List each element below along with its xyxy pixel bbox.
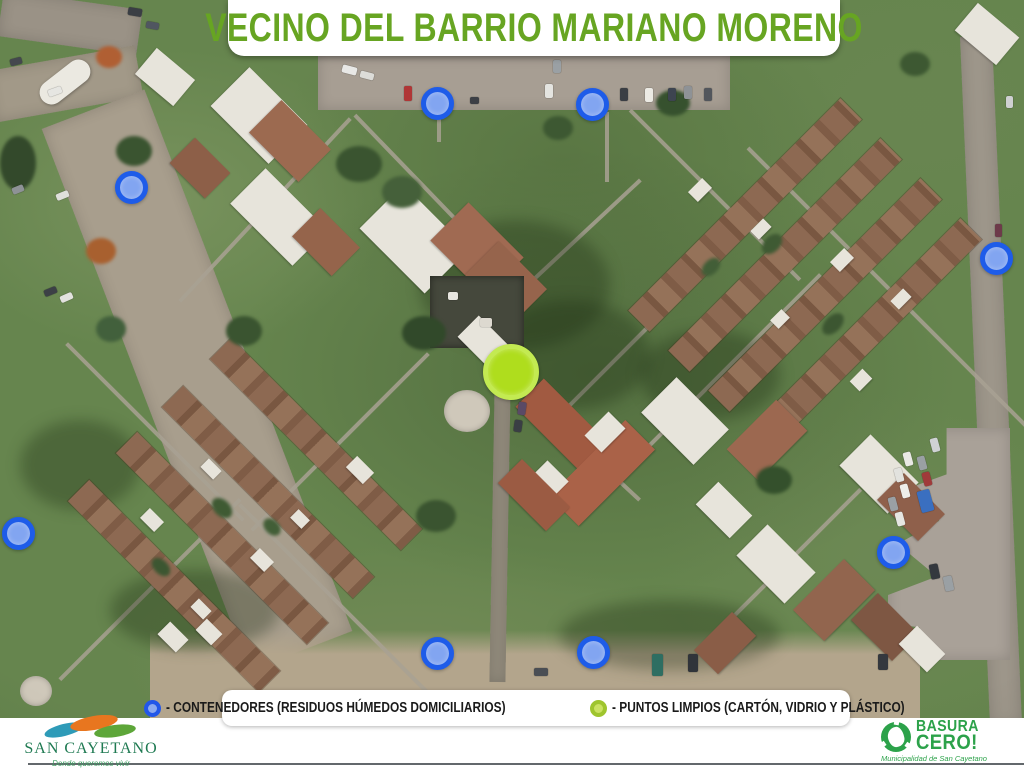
tree bbox=[416, 500, 456, 532]
roof-white bbox=[850, 369, 873, 392]
car bbox=[929, 437, 940, 453]
program-tagline: Municipalidad de San Cayetano bbox=[854, 754, 1014, 763]
municipality-name: SAN CAYETANO bbox=[16, 740, 166, 758]
program-name-line2: CERO! bbox=[916, 734, 979, 753]
punto-limpio-legend-dot-icon bbox=[590, 700, 607, 717]
path bbox=[605, 112, 609, 182]
tree bbox=[382, 176, 422, 208]
car bbox=[534, 668, 548, 676]
car bbox=[668, 88, 676, 101]
car bbox=[43, 286, 58, 297]
legend-label: - CONTENEDORES (RESIDUOS HÚMEDOS DOMICIL… bbox=[166, 700, 506, 716]
legend-bar: - CONTENEDORES (RESIDUOS HÚMEDOS DOMICIL… bbox=[222, 690, 850, 726]
legend-label: - PUNTOS LIMPIOS (CARTÓN, VIDRIO Y PLÁST… bbox=[612, 700, 905, 716]
san-cayetano-swoosh-icon bbox=[36, 716, 146, 738]
car bbox=[480, 318, 492, 327]
contenedor-marker bbox=[115, 171, 148, 204]
car bbox=[684, 86, 692, 99]
contenedor-marker bbox=[576, 88, 609, 121]
car bbox=[995, 224, 1002, 237]
car bbox=[545, 84, 553, 98]
car bbox=[916, 455, 927, 471]
roof-white bbox=[696, 482, 753, 539]
contenedor-legend-dot-icon bbox=[144, 700, 161, 717]
contenedor-marker bbox=[980, 242, 1013, 275]
tree bbox=[226, 316, 262, 346]
plaza bbox=[20, 676, 52, 706]
car bbox=[55, 190, 70, 201]
tree bbox=[402, 316, 446, 350]
basura-cero-logo: BASURA CERO! Municipalidad de San Cayeta… bbox=[854, 720, 1014, 763]
contenedor-marker bbox=[877, 536, 910, 569]
car bbox=[448, 292, 458, 300]
footer-divider bbox=[28, 763, 1024, 765]
roof-white bbox=[140, 508, 164, 532]
contenedor-marker bbox=[421, 637, 454, 670]
tree bbox=[96, 46, 122, 68]
municipality-tagline: Donde queremos vivir bbox=[16, 759, 166, 768]
contenedor-marker bbox=[421, 87, 454, 120]
tree bbox=[96, 316, 126, 342]
car bbox=[878, 654, 888, 670]
car bbox=[145, 21, 159, 30]
contenedor-marker bbox=[577, 636, 610, 669]
roof-white bbox=[688, 178, 712, 202]
tree bbox=[336, 146, 382, 182]
car bbox=[553, 60, 561, 73]
page-title: VECINO DEL BARRIO MARIANO MORENO bbox=[205, 6, 863, 51]
car bbox=[652, 654, 663, 676]
tree bbox=[543, 116, 573, 140]
car bbox=[620, 88, 628, 101]
contenedor-marker bbox=[2, 517, 35, 550]
legend-item-contenedores: - CONTENEDORES (RESIDUOS HÚMEDOS DOMICIL… bbox=[144, 700, 580, 717]
san-cayetano-logo: SAN CAYETANO Donde queremos vivir bbox=[16, 716, 166, 768]
roof-white bbox=[736, 524, 815, 603]
tree bbox=[900, 52, 930, 76]
car bbox=[470, 97, 479, 104]
car bbox=[645, 88, 653, 102]
legend-item-puntos-limpios: - PUNTOS LIMPIOS (CARTÓN, VIDRIO Y PLÁST… bbox=[590, 700, 929, 717]
recycle-leaf-icon bbox=[881, 722, 911, 752]
poster: VECINO DEL BARRIO MARIANO MORENO - CONTE… bbox=[0, 0, 1024, 768]
car bbox=[688, 654, 698, 672]
car bbox=[902, 451, 913, 467]
tree bbox=[0, 136, 36, 190]
tree bbox=[86, 238, 116, 264]
title-banner: VECINO DEL BARRIO MARIANO MORENO bbox=[228, 0, 840, 56]
tree bbox=[756, 466, 792, 494]
car bbox=[404, 86, 412, 101]
car bbox=[704, 88, 712, 101]
car bbox=[59, 292, 74, 304]
punto-limpio-marker bbox=[483, 344, 539, 400]
car bbox=[513, 420, 523, 433]
tree bbox=[116, 136, 152, 166]
car bbox=[1006, 96, 1013, 108]
plaza bbox=[444, 390, 490, 432]
aerial-photo-map bbox=[0, 0, 1024, 718]
